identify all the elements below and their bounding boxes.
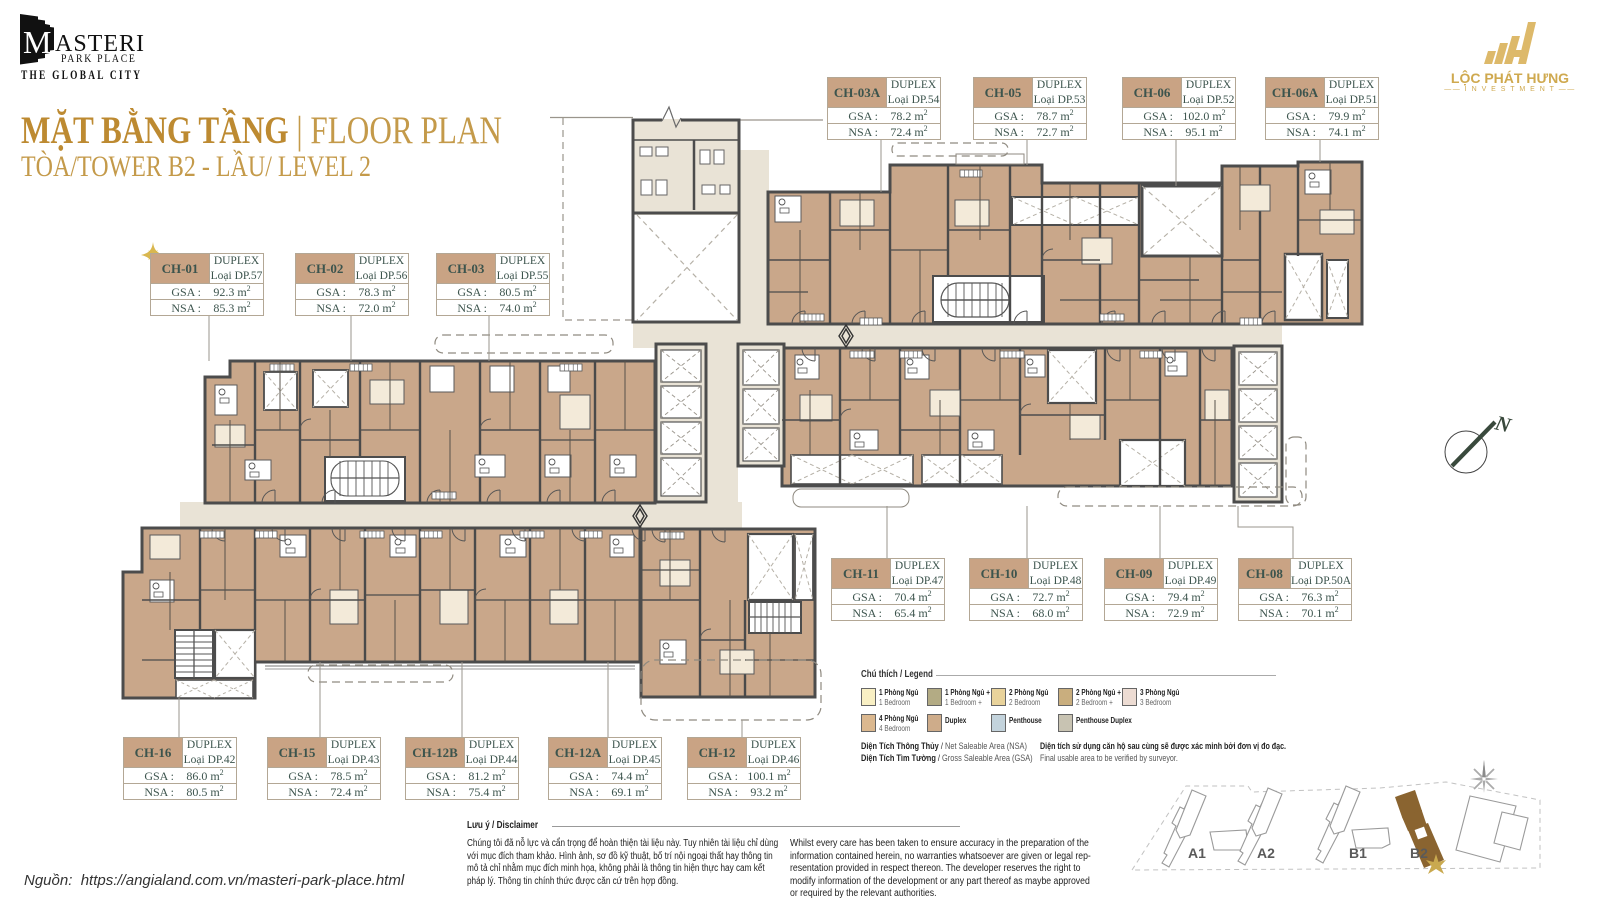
svg-text:B1: B1 <box>1349 845 1367 861</box>
svg-text:M: M <box>23 24 51 60</box>
svg-text:B2: B2 <box>1410 845 1428 861</box>
svg-text:A2: A2 <box>1257 845 1275 861</box>
svg-text:A1: A1 <box>1188 845 1206 861</box>
svg-text:N: N <box>1492 410 1514 437</box>
